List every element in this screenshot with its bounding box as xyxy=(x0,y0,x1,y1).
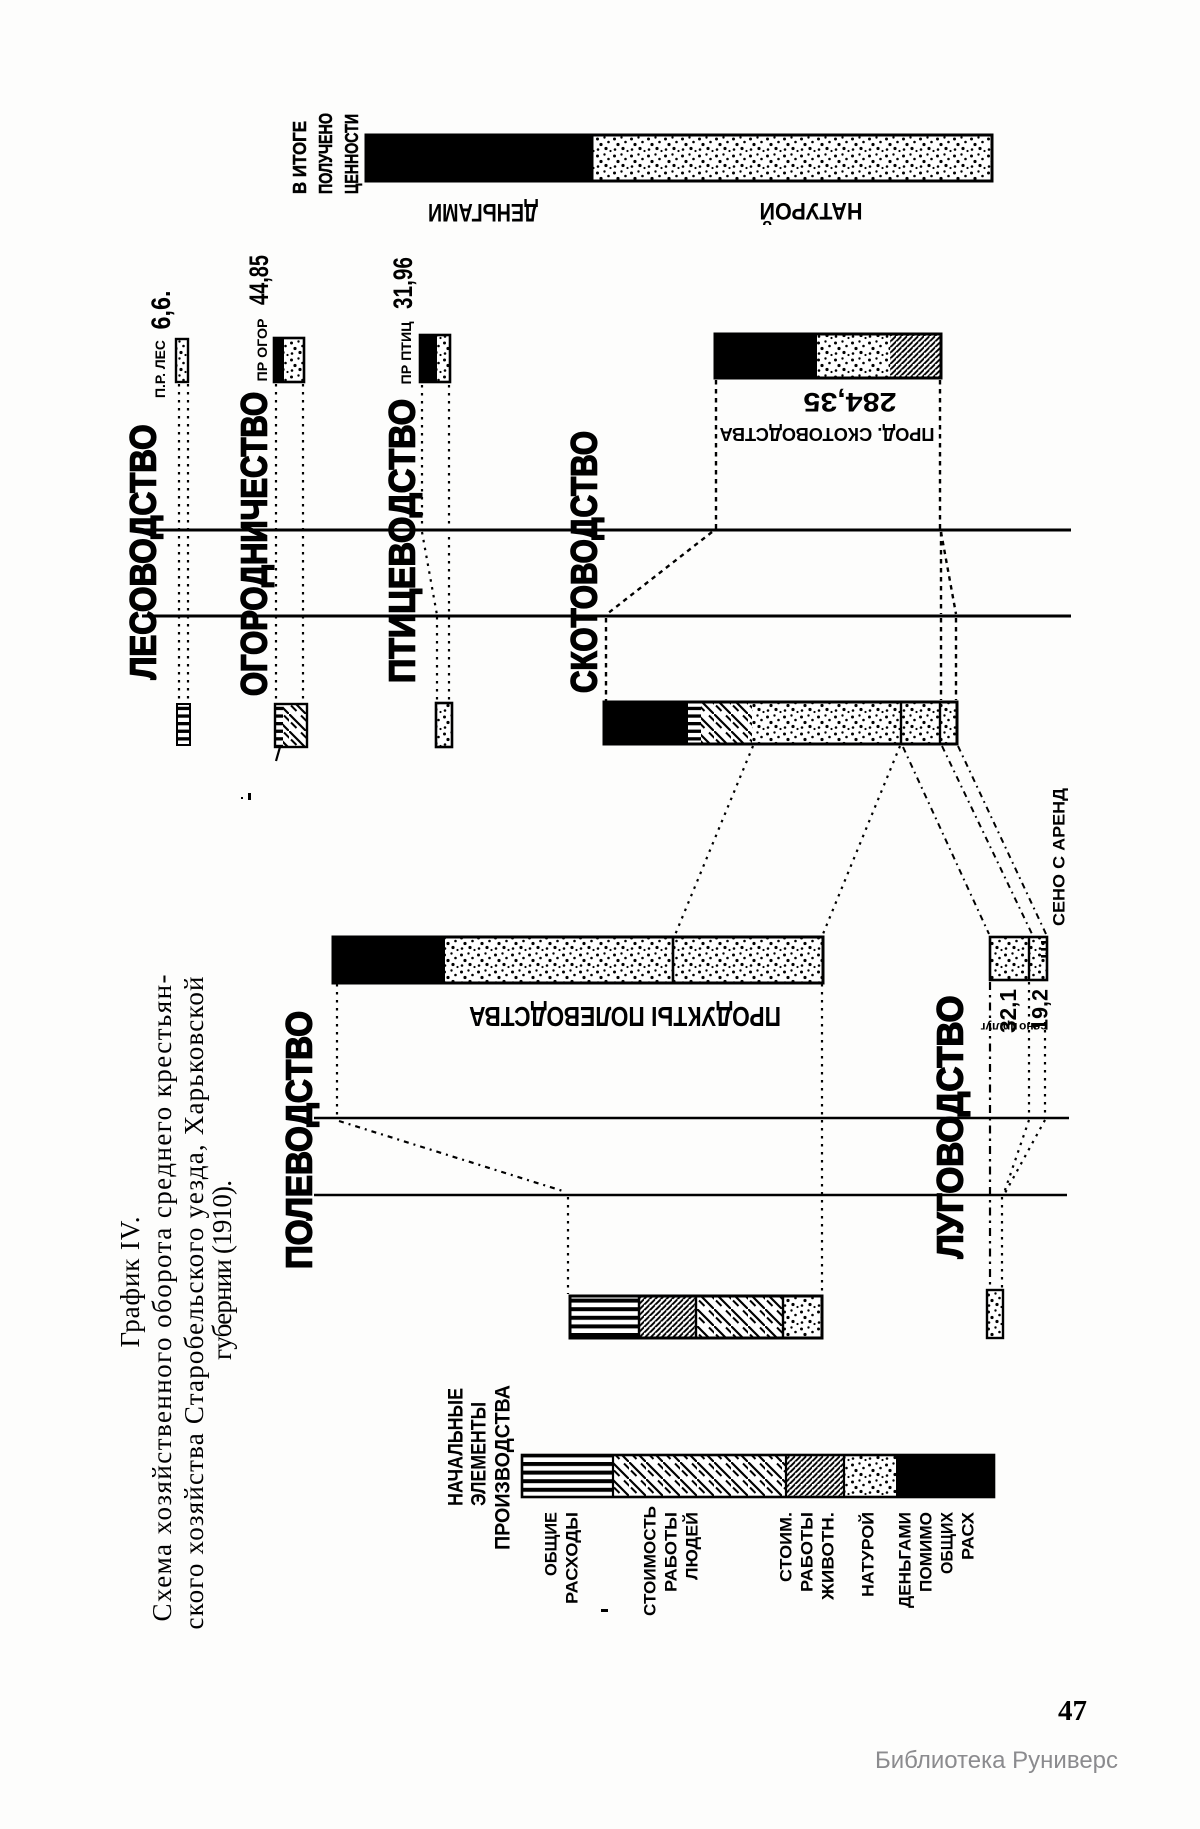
svg-text:ПР ПТИЦ: ПР ПТИЦ xyxy=(398,321,414,385)
svg-text:График IV.: График IV. xyxy=(115,1217,145,1348)
svg-text:СКОТОВОДСТВО: СКОТОВОДСТВО xyxy=(564,431,605,693)
svg-text:ПРОДУКТЫ ПОЛЕВОДСТВА: ПРОДУКТЫ ПОЛЕВОДСТВА xyxy=(469,1001,781,1032)
svg-text:сено: сено xyxy=(1019,1020,1047,1034)
svg-text:В ИТОГЕ: В ИТОГЕ xyxy=(290,121,310,194)
svg-text:ЛЮДЕЙ: ЛЮДЕЙ xyxy=(683,1512,702,1580)
svg-text:НАТУРОЙ: НАТУРОЙ xyxy=(859,1512,878,1597)
svg-text:ЭЛЕМЕНТЫ: ЭЛЕМЕНТЫ xyxy=(468,1402,491,1506)
svg-text:ЛЕСОВОДСТВО: ЛЕСОВОДСТВО xyxy=(123,425,164,680)
svg-text:СЕНО С АРЕНД: СЕНО С АРЕНД xyxy=(1050,788,1069,926)
svg-text:ПРОД. СКОТОВОДСТВА: ПРОД. СКОТОВОДСТВА xyxy=(720,424,935,444)
svg-text:ПР ОГОР: ПР ОГОР xyxy=(254,319,270,382)
svg-text:губернии (1910).: губернии (1910). xyxy=(207,1180,237,1360)
svg-text:П.Р. ЛЕС: П.Р. ЛЕС xyxy=(152,340,168,398)
svg-text:РАСХОДЫ: РАСХОДЫ xyxy=(563,1512,582,1604)
svg-text:ДЕНЬГАМИ: ДЕНЬГАМИ xyxy=(896,1512,915,1608)
svg-text:РАСХ: РАСХ xyxy=(959,1511,978,1560)
svg-text:ПОЛУЧЕНО: ПОЛУЧЕНО xyxy=(316,113,336,194)
svg-text:Библиотека Руниверс: Библиотека Руниверс xyxy=(875,1747,1118,1774)
svg-text:СТОИМОСТЬ: СТОИМОСТЬ xyxy=(641,1506,660,1616)
svg-text:31,96: 31,96 xyxy=(388,257,418,309)
svg-text:ДЕНЬГАМИ: ДЕНЬГАМИ xyxy=(428,198,538,226)
svg-text:ПТИЦЕВОДСТВО: ПТИЦЕВОДСТВО xyxy=(382,399,423,683)
svg-text:ОБЩИХ: ОБЩИХ xyxy=(938,1511,957,1574)
svg-text:284,35: 284,35 xyxy=(804,387,897,417)
svg-text:ЖИВОТН.: ЖИВОТН. xyxy=(819,1512,838,1601)
svg-text:47: 47 xyxy=(1058,1695,1087,1727)
svg-text:ЦЕННОСТИ: ЦЕННОСТИ xyxy=(342,114,362,194)
svg-text:ОБЩИЕ: ОБЩИЕ xyxy=(542,1512,561,1576)
svg-text:44,85: 44,85 xyxy=(244,255,274,305)
svg-text:ского хозяйства Старобельского: ского хозяйства Старобельского уезда, Ха… xyxy=(179,977,209,1630)
svg-text:НАТУРОЙ: НАТУРОЙ xyxy=(760,197,863,225)
svg-text:СТОИМ.: СТОИМ. xyxy=(777,1512,796,1582)
svg-text:ЛУГОВОДСТВО: ЛУГОВОДСТВО xyxy=(930,996,971,1259)
svg-text:РАБОТЫ: РАБОТЫ xyxy=(662,1512,681,1592)
svg-text:пр.луг: пр.луг xyxy=(980,1020,1017,1034)
svg-text:ПОМИМО: ПОМИМО xyxy=(917,1512,936,1592)
svg-text:ОГОРОДНИЧЕСТВО: ОГОРОДНИЧЕСТВО xyxy=(234,392,275,696)
svg-text:РАБОТЫ: РАБОТЫ xyxy=(798,1512,817,1592)
svg-text:ПРОИЗВОДСТВА: ПРОИЗВОДСТВА xyxy=(492,1385,515,1550)
svg-text:6,6.: 6,6. xyxy=(146,291,176,330)
svg-text:НАЧАЛЬНЫЕ: НАЧАЛЬНЫЕ xyxy=(445,1388,468,1506)
svg-text:Схема хозяйственного оборота с: Схема хозяйственного оборота среднего кр… xyxy=(147,975,177,1622)
svg-text:ПОЛЕВОДСТВО: ПОЛЕВОДСТВО xyxy=(279,1011,320,1269)
